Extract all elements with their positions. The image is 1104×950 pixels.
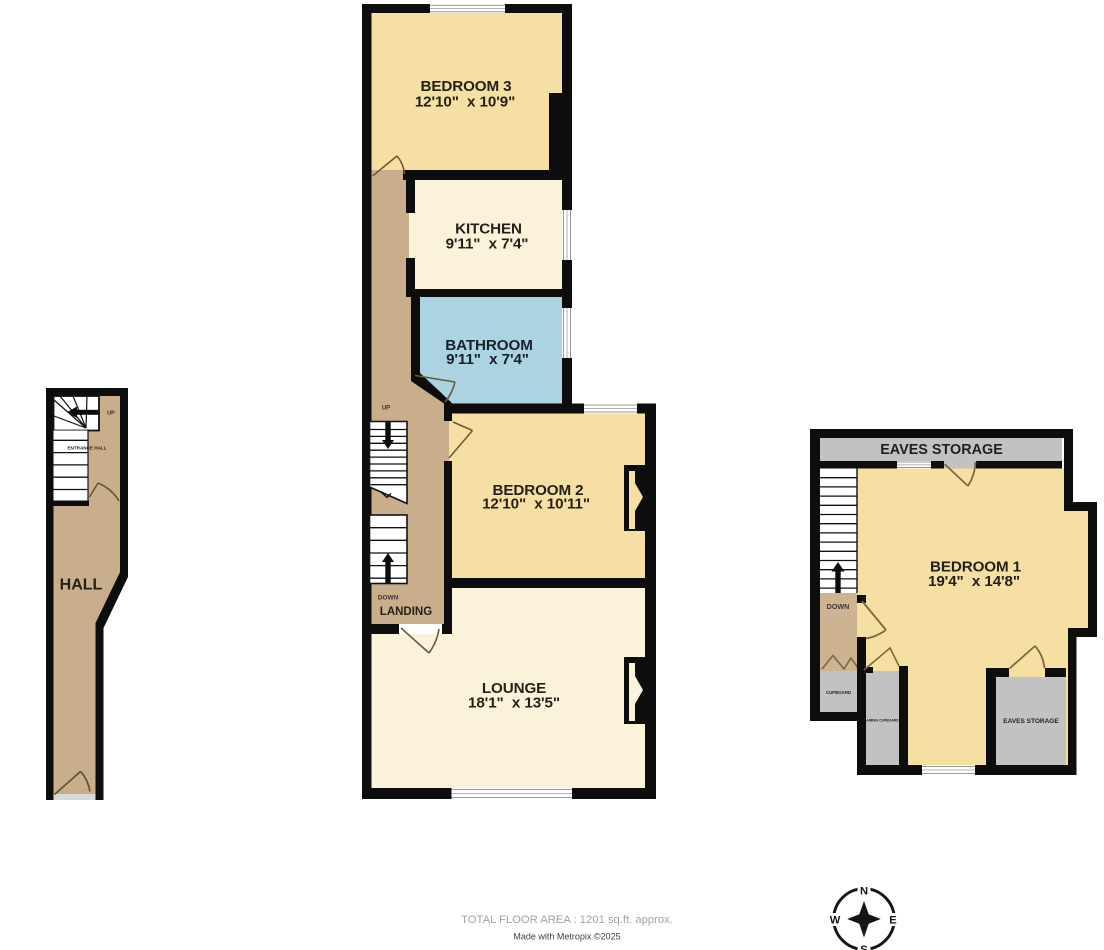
svg-text:AIRING CUPBOARD: AIRING CUPBOARD [866,719,899,723]
svg-text:EAVES STORAGE: EAVES STORAGE [1003,718,1059,725]
svg-text:S: S [860,944,868,950]
svg-text:LANDING: LANDING [380,606,432,618]
svg-text:UP: UP [107,411,115,417]
svg-text:9'11" x 7'4": 9'11" x 7'4" [446,236,529,253]
svg-text:N: N [860,886,868,898]
svg-text:UP: UP [382,406,390,412]
svg-text:19'4" x 14'8": 19'4" x 14'8" [928,573,1020,590]
svg-text:12'10" x 10'11": 12'10" x 10'11" [482,496,590,513]
svg-text:W: W [830,914,841,926]
svg-text:DOWN: DOWN [378,595,399,602]
svg-text:TOTAL FLOOR AREA : 1201 sq.ft.: TOTAL FLOOR AREA : 1201 sq.ft. approx. [461,914,673,926]
svg-text:12'10" x 10'9": 12'10" x 10'9" [415,93,515,110]
svg-text:DOWN: DOWN [827,602,850,611]
svg-text:Made with Metropix ©2025: Made with Metropix ©2025 [513,932,620,942]
svg-text:ENTRANCE HALL: ENTRANCE HALL [67,446,106,451]
svg-text:18'1" x 13'5": 18'1" x 13'5" [468,695,560,712]
svg-text:E: E [889,914,897,926]
svg-text:HALL: HALL [60,577,103,594]
svg-text:9'11" x 7'4": 9'11" x 7'4" [446,351,529,368]
svg-text:EAVES STORAGE: EAVES STORAGE [880,442,1003,458]
svg-text:CUPBOARD: CUPBOARD [826,690,851,695]
